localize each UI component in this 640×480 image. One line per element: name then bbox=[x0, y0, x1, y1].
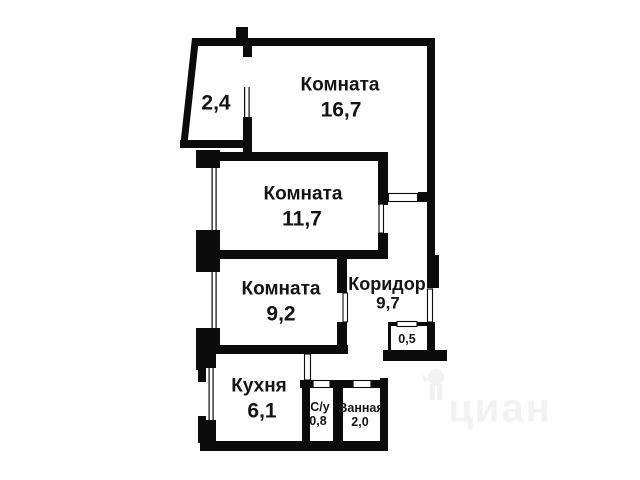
balcony-divider-lower bbox=[243, 117, 252, 158]
wall-left-bump-mid bbox=[196, 230, 208, 272]
wall-closet-top-a bbox=[388, 322, 397, 326]
wall-right-lower bbox=[427, 322, 435, 352]
balcony-area: 2,4 bbox=[201, 93, 230, 114]
wc-label: С/у bbox=[310, 401, 329, 414]
bath-label: Ванная bbox=[338, 402, 383, 415]
wall-left-bump-top bbox=[196, 150, 208, 168]
door-room1-corridor bbox=[389, 194, 418, 202]
window-room2 bbox=[208, 168, 220, 230]
corridor-area: 9,7 bbox=[376, 295, 400, 312]
closet-area: 0,5 bbox=[398, 333, 415, 346]
wall-corridor-bottom bbox=[383, 350, 447, 361]
wall-room2-bottom bbox=[208, 250, 388, 259]
door-room3 bbox=[343, 293, 348, 322]
room3-label: Комната bbox=[242, 280, 321, 299]
window-room2-line bbox=[216, 168, 217, 230]
door-room2 bbox=[379, 204, 384, 233]
wall-kitchen-bump-low bbox=[198, 416, 206, 443]
balcony-divider-tab bbox=[236, 27, 248, 39]
window-kitchen-line bbox=[209, 368, 210, 420]
door-kitchen bbox=[305, 354, 311, 380]
window-kitchen bbox=[206, 368, 216, 420]
wall-top bbox=[192, 38, 435, 46]
bath-area: 2,0 bbox=[351, 416, 368, 429]
window-kitchen-line bbox=[213, 368, 214, 420]
balcony-bottom-wall bbox=[180, 140, 252, 148]
window-room3 bbox=[208, 272, 220, 328]
wc-area: 0,8 bbox=[309, 415, 326, 428]
door-wc bbox=[313, 381, 330, 388]
balcony-slanted-wall bbox=[180, 38, 199, 148]
wall-kitchen-bump-top bbox=[198, 356, 206, 382]
window-room2-line bbox=[212, 168, 213, 230]
wall-room1-bottom bbox=[208, 152, 388, 161]
wall-room3-right-a bbox=[337, 259, 347, 293]
room1-label: Комната bbox=[301, 76, 380, 95]
wall-room3-bottom bbox=[208, 345, 348, 354]
wall-wc-top-b bbox=[330, 380, 353, 388]
wall-right-mid bbox=[427, 202, 435, 259]
window-room3-line bbox=[216, 272, 217, 328]
room1-area: 16,7 bbox=[321, 100, 362, 121]
wall-right-bump bbox=[427, 255, 439, 288]
kitchen-label: Кухня bbox=[231, 377, 287, 396]
room2-label: Комната bbox=[264, 185, 343, 204]
wall-closet-top-b bbox=[417, 322, 427, 326]
entrance-door bbox=[428, 289, 433, 322]
door-closet bbox=[397, 322, 417, 327]
balcony-window-line bbox=[249, 87, 250, 117]
room3-area: 9,2 bbox=[266, 304, 295, 325]
door-bath bbox=[353, 381, 371, 388]
balcony-window-line bbox=[244, 87, 245, 117]
window-room3-line bbox=[212, 272, 213, 328]
kitchen-area: 6,1 bbox=[247, 401, 276, 422]
wall-room2-right-a bbox=[378, 161, 388, 205]
floor-plan: циан bbox=[0, 0, 640, 480]
wall-right-upper bbox=[427, 38, 435, 205]
wall-right-step bbox=[418, 192, 435, 202]
wall-bottom bbox=[200, 441, 388, 451]
corridor-label: Коридор bbox=[348, 275, 425, 293]
room2-area: 11,7 bbox=[282, 209, 322, 230]
wall-wc-top-a bbox=[300, 380, 313, 388]
balcony-divider-upper bbox=[243, 46, 252, 57]
wall-closet-left bbox=[388, 326, 391, 352]
